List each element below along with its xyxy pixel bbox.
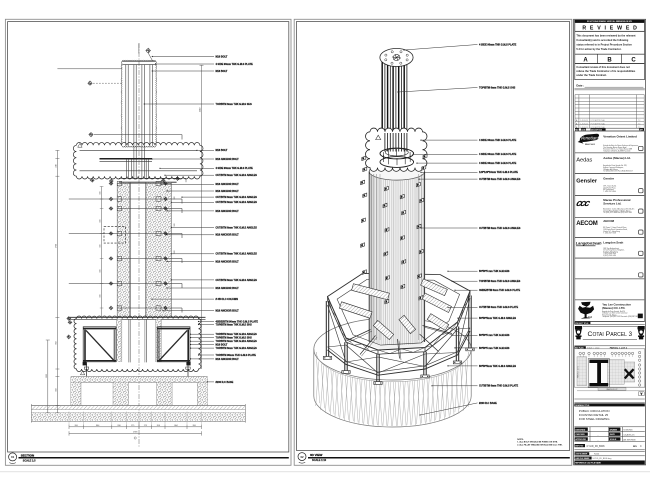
- svg-text:864: 864: [96, 425, 99, 427]
- svg-text:500: 500: [100, 220, 102, 223]
- svg-text:500: 500: [174, 251, 176, 254]
- svg-text:1-JUN-15: 1-JUN-15: [580, 124, 588, 126]
- svg-text:1. ALL BOLT SHOULD BE FIXING: 1. ALL BOLT SHOULD BE FIXING ON SITE.: [517, 441, 558, 444]
- svg-text:4 SIDE 90mm THK G.M.S PLATE: 4 SIDE 90mm THK G.M.S PLATE: [216, 167, 254, 170]
- svg-text:200: 200: [193, 425, 196, 427]
- svg-text:under the Trade Contract.: under the Trade Contract.: [576, 74, 607, 77]
- svg-text:500: 500: [100, 295, 102, 298]
- svg-text:M16 BOLT: M16 BOLT: [216, 55, 228, 58]
- svg-text:AS SHOWN: AS SHOWN: [623, 438, 635, 441]
- svg-text:Ltd: Ltd: [588, 316, 592, 319]
- svg-text:4 SIDE 90mm THK G.M.S PLATE: 4 SIDE 90mm THK G.M.S PLATE: [479, 43, 517, 46]
- svg-text:175: 175: [144, 425, 147, 427]
- svg-text:#200 R.C BASE: #200 R.C BASE: [479, 402, 497, 405]
- svg-text:CUT/BTM 6mm THK G.M.S ANGLES: CUT/BTM 6mm THK G.M.S ANGLES: [216, 201, 258, 204]
- svg-text:500: 500: [100, 192, 102, 195]
- svg-text:Venetian Orient Limited: Venetian Orient Limited: [603, 135, 637, 139]
- svg-text:TOP/BTM 6mm THK G.M.S SHS: TOP/BTM 6mm THK G.M.S SHS: [216, 323, 253, 326]
- svg-text:CUT/BTM 6mm THK G.M.S ANGLES: CUT/BTM 6mm THK G.M.S ANGLES: [216, 196, 258, 199]
- svg-text:2. ALL FILLET WELDED SHOULD B: 2. ALL FILLET WELDED SHOULD BE 6mm THK.: [517, 444, 563, 447]
- svg-text:One Pacific Place,: One Pacific Place,: [603, 187, 616, 189]
- svg-text:Telephone: (853) 81-18-2888: Telephone: (853) 81-18-2888 Facsimile:: [603, 150, 631, 152]
- svg-text:CUT/BTM 6mm THK G.M.S ANGLES: CUT/BTM 6mm THK G.M.S ANGLES: [216, 174, 258, 177]
- svg-text:C: C: [631, 57, 636, 63]
- svg-text:Venetian: Venetian: [580, 135, 598, 140]
- svg-text:(Macau) CO. LTD.: (Macau) CO. LTD.: [602, 306, 625, 310]
- svg-text:H-124: H-124: [594, 454, 599, 456]
- svg-text:status referred to in Projec: status referred to in Project Procedure …: [576, 43, 632, 46]
- svg-text:M16 BOLT: M16 BOLT: [216, 70, 228, 73]
- svg-text:Telephone: (853)2837 3618 Fa: Telephone: (853)2837 3618 Facsimile: (85…: [602, 316, 639, 318]
- svg-text:TOP/BTM 90mm THK G.M.S PLATE: TOP/BTM 90mm THK G.M.S PLATE: [216, 354, 257, 357]
- svg-text:200: 200: [75, 425, 78, 427]
- svg-text:CUT/BTM 6mm THK G.M.S ANGLES: CUT/BTM 6mm THK G.M.S ANGLES: [216, 253, 258, 256]
- svg-text:2700: 2700: [55, 244, 57, 248]
- svg-text:3-YLID_FD_B006.dwg: 3-YLID_FD_B006.dwg: [592, 458, 611, 460]
- svg-text:3D VIEW: 3D VIEW: [310, 453, 323, 457]
- svg-text:3-YLID_FD_B006: 3-YLID_FD_B006: [586, 446, 605, 448]
- svg-text:5.4 for action by the Trade Co: 5.4 for action by the Trade Contractor.: [576, 48, 621, 51]
- svg-text:M16 ANCHOR BOLT: M16 ANCHOR BOLT: [216, 183, 240, 186]
- svg-text:T +852 2317 7000: T +852 2317 7000: [603, 233, 616, 235]
- svg-text:Aedas (Macau) Ltd.: Aedas (Macau) Ltd.: [603, 156, 631, 160]
- svg-text:FOR APPROVAL: FOR APPROVAL: [591, 119, 605, 122]
- svg-text:LangdonSeah: LangdonSeah: [576, 241, 602, 246]
- svg-text:Gensler: Gensler: [576, 178, 598, 184]
- svg-text:2768: 2768: [133, 432, 137, 434]
- svg-text:TOP/BTM 6mm THK G.M.S SHS: TOP/BTM 6mm THK G.M.S SHS: [216, 337, 253, 340]
- svg-text:M16 ANCHOR BOLT: M16 ANCHOR BOLT: [216, 210, 240, 213]
- svg-text:SCALE 1:5: SCALE 1:5: [23, 459, 36, 462]
- svg-text:M16 ANCHOR BOLT: M16 ANCHOR BOLT: [216, 260, 240, 263]
- svg-text:Date :: Date :: [576, 84, 584, 88]
- svg-text:COTAI PARCEL 3: COTAI PARCEL 3: [588, 331, 633, 338]
- svg-text:500: 500: [174, 197, 176, 200]
- svg-text:CUT/BTM 6mm THK G.M.S ANGLES: CUT/BTM 6mm THK G.M.S ANGLES: [479, 178, 521, 181]
- svg-text:AECOM: AECOM: [576, 221, 598, 227]
- svg-text:# 350 R.C COLUMN: # 350 R.C COLUMN: [216, 298, 239, 301]
- svg-text:M16 ANCHOR BOLT: M16 ANCHOR BOLT: [216, 358, 240, 361]
- svg-text:4 SIDE 90mm THK G.M.S PLATE: 4 SIDE 90mm THK G.M.S PLATE: [479, 153, 517, 156]
- svg-text:FOR STEEL DRAWING: FOR STEEL DRAWING: [579, 417, 610, 421]
- svg-text:F (852) 2576 0416: F (852) 2576 0416: [603, 255, 616, 257]
- svg-text:120*120*10mm THK G.M.S PLATE: 120*120*10mm THK G.M.S PLATE: [479, 171, 518, 174]
- svg-text:50*50*5 mm THK G.M.SHS: 50*50*5 mm THK G.M.SHS: [479, 334, 510, 337]
- svg-text:DATE: DATE: [610, 433, 616, 436]
- svg-text:M16 ANCHOR BOLT: M16 ANCHOR BOLT: [216, 310, 240, 313]
- svg-text:DESIGNED: DESIGNED: [575, 429, 586, 431]
- svg-text:Tel: (853) 2875 3088 Fax: (8: Tel: (853) 2875 3088 Fax: (853) 2875 303…: [603, 212, 632, 214]
- svg-text:50*50*5 mm THK G.M.SHS: 50*50*5 mm THK G.M.SHS: [479, 270, 510, 273]
- svg-text:AECOM: AECOM: [603, 219, 614, 223]
- svg-text:M16 ANCHOR BOLT: M16 ANCHOR BOLT: [216, 158, 240, 161]
- svg-text:Gensler: Gensler: [603, 176, 615, 180]
- svg-text:DWG NO: DWG NO: [575, 446, 584, 448]
- svg-text:S.WONG: S.WONG: [623, 430, 632, 432]
- svg-text:A: A: [583, 57, 588, 63]
- svg-text:relieve the Trade Contractor o: relieve the Trade Contractor of its resp…: [576, 70, 636, 73]
- svg-text:CAD FILE NAME: CAD FILE NAME: [575, 457, 590, 460]
- svg-text:SCALE: SCALE: [610, 438, 617, 441]
- svg-text:CUT/BTM 6mm THK G.M.S PLATE: CUT/BTM 6mm THK G.M.S PLATE: [479, 306, 518, 309]
- svg-text:M16 ANCHOR BOLT: M16 ANCHOR BOLT: [216, 190, 240, 193]
- svg-text:APPROVED: APPROVED: [575, 438, 586, 441]
- svg-text:M A C A O: M A C A O: [585, 143, 595, 146]
- svg-text:TOP/BTM 6mm THK G.M.S SHS: TOP/BTM 6mm THK G.M.S SHS: [216, 103, 253, 106]
- svg-text:4 SIDE 90mm THK G.M.S PLATE: 4 SIDE 90mm THK G.M.S PLATE: [479, 162, 517, 165]
- svg-text:4SIDE/BTM 6mm THK G.M.S PLATE: 4SIDE/BTM 6mm THK G.M.S PLATE: [479, 289, 520, 292]
- svg-text:SECTION: SECTION: [21, 453, 34, 457]
- svg-text:Tel: (853) 2833 1373 Fax: (8: Tel: (853) 2833 1373 Fax: (853) 2833 021…: [603, 171, 633, 173]
- svg-text:200: 200: [117, 425, 120, 427]
- svg-text:01: 01: [11, 455, 15, 459]
- svg-text:Consultant review of this docu: Consultant review of this document does …: [576, 66, 630, 69]
- svg-text:NOTE:: NOTE:: [517, 439, 524, 441]
- svg-text:88 Queensway: 88 Queensway: [603, 189, 614, 191]
- svg-text:500: 500: [100, 245, 102, 248]
- svg-text:DRAWING TITLE: DRAWING TITLE: [575, 404, 590, 407]
- svg-text:T (852) 2830 3500: T (852) 2830 3500: [603, 253, 616, 255]
- svg-text:Aedas: Aedas: [576, 157, 592, 163]
- svg-text:4 SIDE 90mm THK G.M.S PLATE: 4 SIDE 90mm THK G.M.S PLATE: [216, 63, 254, 66]
- svg-text:This document has been reviewe: This document has been reviewed by the r…: [576, 34, 635, 37]
- svg-text:DRAWN: DRAWN: [610, 428, 618, 431]
- svg-text:Consultant(s) and is accorded: Consultant(s) and is accorded the follow…: [576, 39, 628, 42]
- svg-text:950: 950: [55, 341, 57, 344]
- svg-text:864: 864: [174, 425, 177, 427]
- svg-text:02: 02: [300, 455, 304, 459]
- svg-text:200: 200: [157, 425, 160, 427]
- svg-text:M16 ANCHOR BOLT: M16 ANCHOR BOLT: [216, 234, 240, 237]
- svg-text:CUT/BTM 6mm THK G.M.S PLATE: CUT/BTM 6mm THK G.M.S PLATE: [479, 385, 518, 388]
- svg-text:TOP/BTM 6mm THK G.M.S ANGLES: TOP/BTM 6mm THK G.M.S ANGLES: [216, 347, 258, 350]
- svg-text:T +852 2527 6000: T +852 2527 6000: [603, 191, 616, 193]
- svg-text:M16 BOLT: M16 BOLT: [216, 343, 228, 346]
- svg-text:50*50*5mm THK G.M.S ANGLES: 50*50*5mm THK G.M.S ANGLES: [479, 317, 516, 320]
- svg-text:Services Ltd.: Services Ltd.: [603, 202, 621, 206]
- svg-text:500: 500: [100, 270, 102, 273]
- svg-text:REFERENCE CAD FILE NAME: REFERENCE CAD FILE NAME: [575, 462, 601, 465]
- svg-text:SCALE 1:10: SCALE 1:10: [312, 459, 327, 462]
- svg-text:FOR APPROVAL: FOR APPROVAL: [591, 123, 605, 126]
- svg-text:1-JUN-15: 1-JUN-15: [580, 120, 588, 122]
- svg-text:CUT/BTM 6mm THK G.M.S ANGLES: CUT/BTM 6mm THK G.M.S ANGLES: [216, 279, 258, 282]
- svg-text:CUT/BTM 6mm THK G.M.S ANGLES: CUT/BTM 6mm THK G.M.S ANGLES: [216, 226, 258, 229]
- svg-text:TOP/BTM 6mm THK G.M.S ANGLES: TOP/BTM 6mm THK G.M.S ANGLES: [479, 280, 521, 283]
- svg-text:R E V I E W E D: R E V I E W E D: [582, 26, 638, 32]
- svg-text:1332: 1332: [46, 374, 48, 378]
- svg-text:175: 175: [131, 425, 134, 427]
- svg-text:Langdon Seah: Langdon Seah: [603, 241, 623, 245]
- svg-text:CUT/BTM 6mm THK G.M.S ANGLES: CUT/BTM 6mm THK G.M.S ANGLES: [479, 227, 521, 230]
- svg-text:TOP/BTM 6mm THK G.M.S SHS: TOP/BTM 6mm THK G.M.S SHS: [479, 86, 516, 89]
- svg-text:4 SIDE 90mm THK G.M.S PLATE: 4 SIDE 90mm THK G.M.S PLATE: [479, 139, 517, 142]
- svg-text:Kowloon, Hong Kong: Kowloon, Hong Kong: [603, 251, 618, 253]
- svg-text:14-AUG-15: 14-AUG-15: [623, 433, 635, 436]
- svg-text:500: 500: [174, 224, 176, 227]
- svg-text:CHECKED: CHECKED: [575, 434, 585, 436]
- svg-text:240: 240: [55, 164, 57, 167]
- svg-text:50*50*5 mm THK G.M.SHS: 50*50*5 mm THK G.M.SHS: [479, 347, 510, 350]
- svg-text:JOB NUMBER: JOB NUMBER: [575, 454, 588, 456]
- svg-text:#200 R.C BASE: #200 R.C BASE: [216, 381, 234, 384]
- svg-text:M16 BOLT: M16 BOLT: [216, 149, 228, 152]
- svg-text:560: 560: [55, 388, 57, 391]
- svg-text:50*50*5mm THK G.M.S ANGLES: 50*50*5mm THK G.M.S ANGLES: [479, 365, 516, 368]
- svg-text:B: B: [607, 57, 612, 63]
- svg-text:M16 ANCHOR BOLT: M16 ANCHOR BOLT: [216, 287, 240, 290]
